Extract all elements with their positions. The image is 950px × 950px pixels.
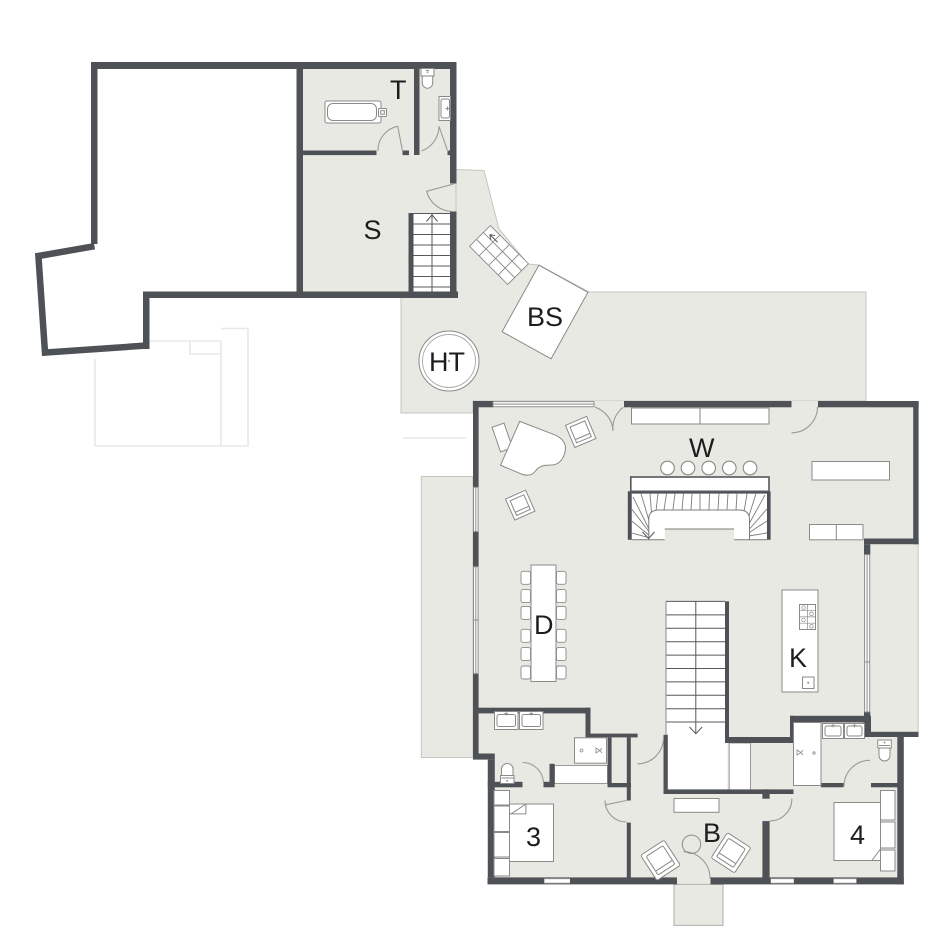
svg-text:HT: HT <box>429 347 465 377</box>
svg-text:D: D <box>534 610 554 640</box>
svg-text:S: S <box>364 215 382 245</box>
svg-text:3: 3 <box>526 822 541 852</box>
svg-text:BS: BS <box>527 302 563 332</box>
svg-text:T: T <box>390 75 407 105</box>
svg-text:K: K <box>789 643 807 673</box>
svg-text:B: B <box>703 818 721 848</box>
svg-text:W: W <box>689 433 715 463</box>
svg-text:4: 4 <box>850 820 865 850</box>
